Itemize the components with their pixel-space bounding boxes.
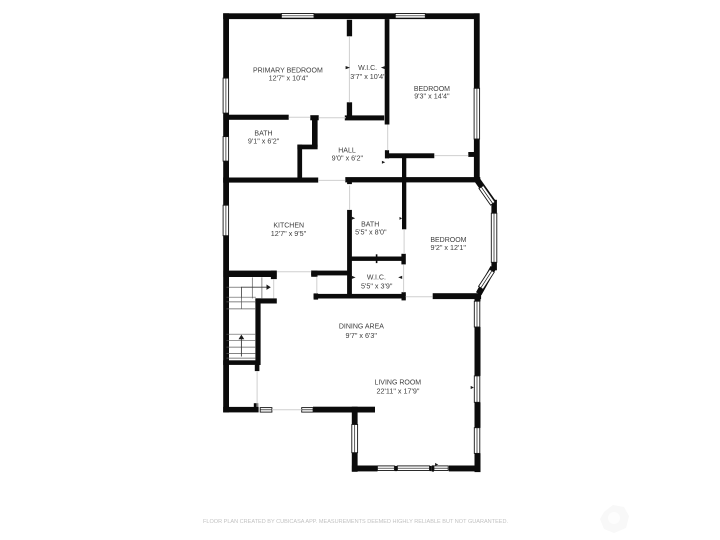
svg-text:9'0" x 6'2": 9'0" x 6'2"	[332, 154, 364, 163]
svg-text:3'7" x 10'4": 3'7" x 10'4"	[350, 72, 386, 81]
svg-text:W.I.C.: W.I.C.	[367, 275, 386, 282]
svg-text:9'1" x 6'2": 9'1" x 6'2"	[248, 137, 280, 146]
svg-text:9'3" x 14'4": 9'3" x 14'4"	[414, 92, 450, 101]
svg-text:W.I.C.: W.I.C.	[358, 65, 377, 72]
svg-text:DINING AREA: DINING AREA	[339, 323, 384, 330]
svg-text:9'2" x 12'1": 9'2" x 12'1"	[430, 243, 466, 252]
svg-text:9'7" x 6'3": 9'7" x 6'3"	[345, 331, 377, 340]
svg-text:FLOOR PLAN CREATED BY CUBICASA: FLOOR PLAN CREATED BY CUBICASA APP. MEAS…	[203, 519, 509, 525]
svg-text:5'5" x 3'9": 5'5" x 3'9"	[361, 282, 393, 291]
svg-text:12'7" x 9'5": 12'7" x 9'5"	[271, 229, 307, 238]
svg-text:12'7" x 10'4": 12'7" x 10'4"	[269, 73, 309, 82]
svg-text:5'5" x 8'0": 5'5" x 8'0"	[355, 227, 387, 236]
svg-text:22'11" x 17'9": 22'11" x 17'9"	[377, 387, 420, 396]
